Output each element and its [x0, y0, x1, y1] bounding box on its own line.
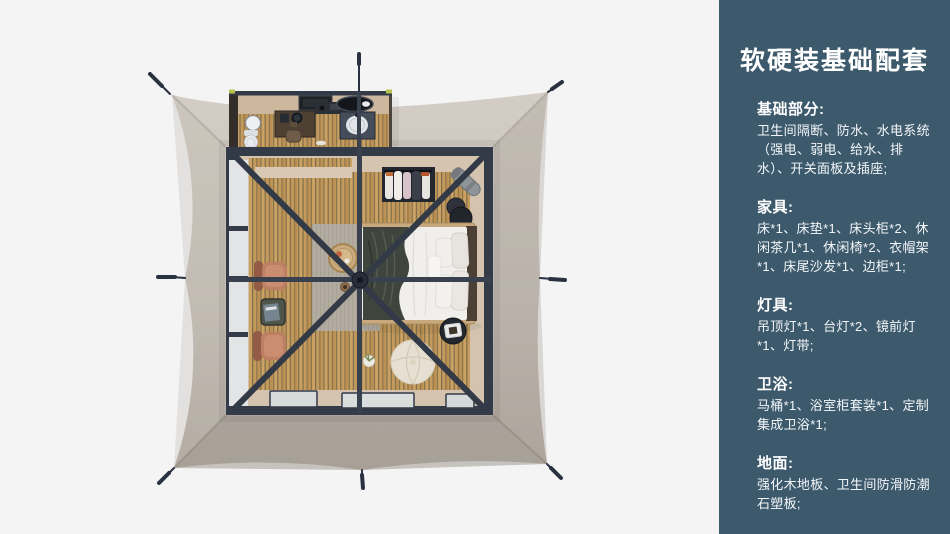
spec-section-furniture: 家具: 床*1、床垫*1、床头柜*2、休闲茶几*1、休闲椅*2、衣帽架*1、床尾… [757, 198, 936, 276]
section-body: 卫生间隔断、防水、水电系统（强电、弱电、给水、排水）、开关面板及插座; [757, 121, 936, 178]
stake-top-right [548, 82, 562, 92]
stake-bottom-middle [362, 470, 363, 488]
section-body: 床*1、床垫*1、床头柜*2、休闲茶几*1、休闲椅*2、衣帽架*1、床尾沙发*1… [757, 219, 936, 276]
bathroom-unit [229, 90, 399, 150]
slide-root: 软硬装基础配套 基础部分: 卫生间隔断、防水、水电系统（强电、弱电、给水、排水）… [0, 0, 950, 534]
section-heading: 家具: [757, 198, 936, 217]
corner-accent-right [386, 90, 392, 94]
section-body: 强化木地板、卫生间防滑防潮石塑板; [757, 475, 936, 513]
round-nightstand [440, 318, 466, 344]
panel-title: 软硬装基础配套 [729, 46, 940, 76]
stake-top-left [150, 74, 170, 94]
lounge-chair-1 [254, 261, 287, 291]
spec-panel: 软硬装基础配套 基础部分: 卫生间隔断、防水、水电系统（强电、弱电、给水、排水）… [719, 0, 950, 534]
toilet [244, 130, 258, 149]
stake-left-middle [158, 277, 185, 278]
left-wall-windows [229, 160, 248, 406]
section-body: 马桶*1、浴室柜套装*1、定制集成卫浴*1; [757, 396, 936, 434]
corner-accent-left [229, 90, 235, 94]
center-hub [352, 272, 368, 288]
wardrobe-rack [382, 167, 435, 202]
bath-mat [316, 141, 326, 146]
stake-bottom-right [547, 464, 561, 478]
section-body: 吊顶灯*1、台灯*2、镜前灯*1、灯带; [757, 317, 936, 355]
section-heading: 灯具: [757, 296, 936, 315]
side-table [261, 299, 285, 325]
section-heading: 地面: [757, 454, 936, 473]
lounge-chair-2 [253, 331, 286, 361]
stake-right-middle [540, 278, 565, 280]
shower-basin [337, 97, 373, 112]
vanity-desk [275, 111, 315, 142]
section-heading: 基础部分: [757, 100, 936, 119]
spec-section-bathroom: 卫浴: 马桶*1、浴室柜套装*1、定制集成卫浴*1; [757, 375, 936, 434]
section-heading: 卫浴: [757, 375, 936, 394]
spec-section-lighting: 灯具: 吊顶灯*1、台灯*2、镜前灯*1、灯带; [757, 296, 936, 355]
panel-sections: 基础部分: 卫生间隔断、防水、水电系统（强电、弱电、给水、排水）、开关面板及插座… [757, 100, 936, 513]
spec-section-flooring: 地面: 强化木地板、卫生间防滑防潮石塑板; [757, 454, 936, 513]
tent-top-view-render [0, 0, 723, 534]
stake-bottom-left [159, 468, 174, 483]
pouf [390, 340, 436, 384]
spec-section-basics: 基础部分: 卫生间隔断、防水、水电系统（强电、弱电、给水、排水）、开关面板及插座… [757, 100, 936, 178]
